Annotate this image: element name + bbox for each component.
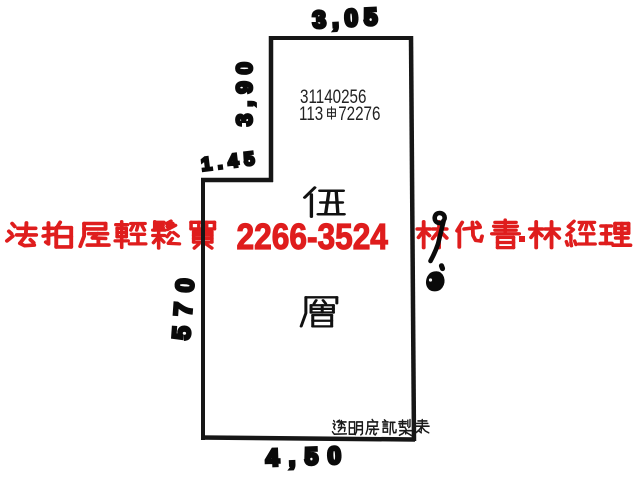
svg-text:2266-3524: 2266-3524 xyxy=(237,217,389,257)
svg-text:1.45: 1.45 xyxy=(200,148,261,176)
svg-text:3,90: 3,90 xyxy=(232,55,257,126)
svg-text:113: 113 xyxy=(299,102,323,124)
svg-text:72276: 72276 xyxy=(338,102,380,124)
svg-text:3,05: 3,05 xyxy=(312,3,384,34)
svg-text:570: 570 xyxy=(168,267,201,340)
svg-text:4,50: 4,50 xyxy=(265,442,351,472)
